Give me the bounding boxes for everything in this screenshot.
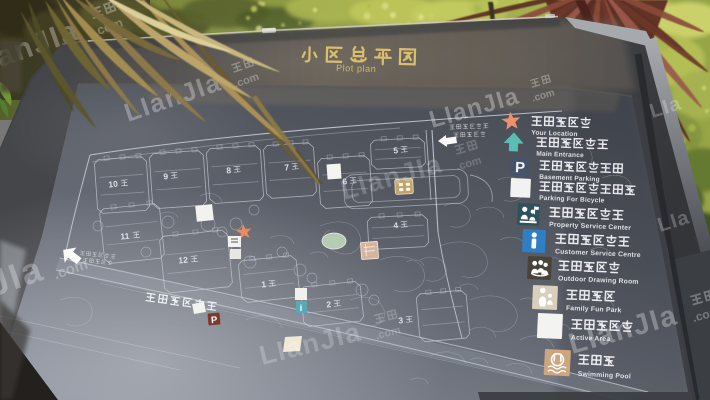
- svg-text:Plot plan: Plot plan: [336, 63, 376, 74]
- svg-text:10: 10: [108, 179, 119, 190]
- svg-text:i: i: [300, 303, 303, 313]
- svg-text:11: 11: [120, 231, 130, 242]
- svg-text:P: P: [515, 159, 526, 176]
- svg-text:12: 12: [178, 255, 189, 266]
